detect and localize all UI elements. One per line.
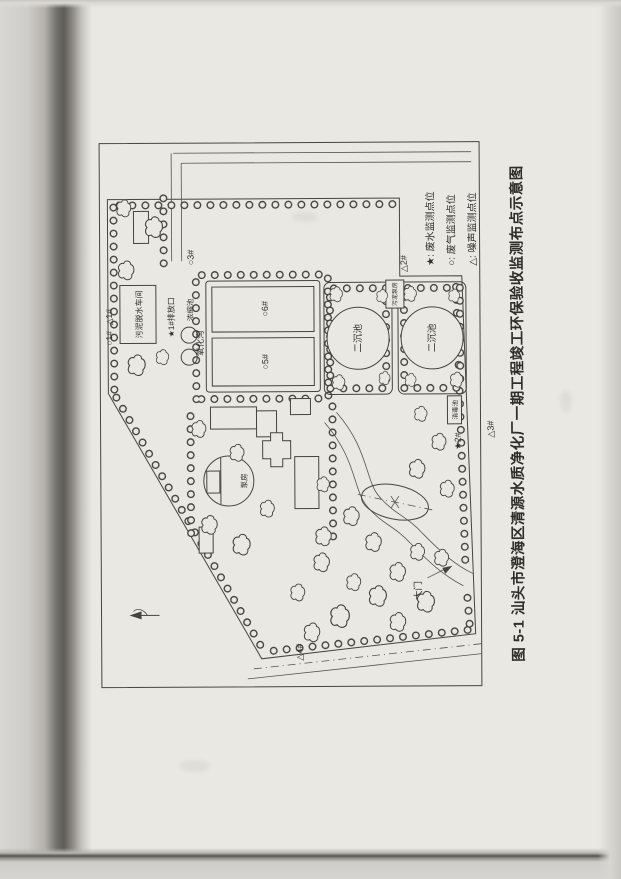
tree-icon	[415, 406, 427, 421]
tree-icon	[118, 261, 133, 280]
tree-icon	[435, 549, 449, 566]
figure-5-1: 污泥脱水车间 浓缩池 ★1#排放口 氧化沟 ○5# ○6# 二沉池 二沉池 污泥…	[93, 138, 546, 695]
tree-icon	[330, 287, 342, 302]
legend-noise: △: 噪声监测点位	[465, 192, 478, 265]
noise-point-2-marker: △2#	[399, 255, 409, 272]
tree-icon	[410, 459, 425, 478]
secondary-tank-2-label: 二沉池	[426, 323, 438, 352]
book-spine-shadow	[0, 0, 92, 879]
noise-point-3-marker: △3#	[486, 421, 496, 438]
tree-icon	[230, 444, 244, 461]
gas-point-5-marker: ○5#	[260, 354, 270, 370]
tree-icon	[260, 500, 274, 517]
secondary-sedimentation-tanks: 二沉池 二沉池 污泥泵房	[324, 280, 467, 395]
tree-icon	[117, 200, 131, 217]
tree-icon	[317, 477, 329, 492]
scan-smudge	[560, 390, 572, 412]
tree-icon	[331, 605, 350, 628]
central-buildings: 泵房	[198, 399, 319, 554]
building-cross	[263, 433, 291, 467]
gas-point-6-marker: ○6#	[260, 301, 270, 317]
tree-icon	[390, 613, 405, 632]
legend-gas: ○: 废气监测点位	[444, 194, 457, 266]
wastewater-point-2-marker: ★2#	[453, 432, 463, 449]
tree-icon	[347, 574, 361, 591]
tree-icon	[440, 480, 454, 497]
sludge-dewatering-label: 污泥脱水车间	[134, 290, 144, 338]
outfall-1-marker: ★1#排放口	[166, 297, 176, 337]
legend-wastewater: ★: 废水监测点位	[423, 191, 436, 266]
scanned-page: 污泥脱水车间 浓缩池 ★1#排放口 氧化沟 ○5# ○6# 二沉池 二沉池 污泥…	[0, 0, 621, 879]
tree-icon	[417, 591, 434, 612]
tree-icon	[146, 217, 163, 238]
figure-caption: 图 5-1 汕头市澄海区清源水质净化厂一期工程竣工环保验收监测布点示意图	[507, 165, 528, 662]
tree-icon	[128, 355, 145, 376]
tree-icon	[432, 433, 446, 450]
north-arrow	[130, 609, 160, 619]
tree-icon	[291, 584, 305, 601]
gas-point-3-marker: ○3#	[186, 250, 196, 266]
tree-icon	[156, 350, 168, 365]
page-top-edge	[0, 0, 621, 8]
building	[295, 457, 319, 509]
thickener-label: 浓缩池	[185, 298, 195, 321]
tree-icon	[411, 543, 425, 560]
scan-smudge	[180, 760, 210, 772]
page-right-edge	[598, 0, 621, 879]
tree-icon	[369, 586, 386, 607]
road-outer-edge	[248, 654, 482, 679]
tree-icon	[344, 507, 359, 526]
noise-point-4-marker: △4#	[295, 644, 305, 661]
gate-arrow-head	[442, 566, 452, 574]
disinfection-tank-label: 消毒池	[450, 400, 459, 420]
legend: ★: 废水监测点位 ○: 废气监测点位 △: 噪声监测点位	[423, 191, 478, 266]
oxidation-ditch-outline	[206, 280, 321, 392]
pump-house-label: 泵房	[239, 473, 249, 488]
tree-icon	[366, 533, 381, 552]
tree-icon	[192, 421, 206, 438]
page-bottom-edge	[0, 848, 621, 879]
site-plan-svg: 污泥脱水车间 浓缩池 ★1#排放口 氧化沟 ○5# ○6# 二沉池 二沉池 污泥…	[93, 138, 546, 695]
tree-icon	[405, 373, 416, 386]
tree-icon	[390, 563, 405, 582]
building	[210, 407, 256, 429]
tree-icon	[379, 371, 390, 384]
oxidation-ditch-complex: 氧化沟 ○5# ○6#	[195, 280, 321, 392]
sludge-pump-house-label: 污泥泵房	[391, 282, 399, 306]
scan-smudge	[292, 212, 318, 222]
tree-icon	[316, 527, 331, 546]
building	[290, 399, 310, 415]
tree-icon	[314, 553, 329, 572]
secondary-tank-1-label: 二沉池	[352, 324, 364, 353]
tree-icon	[304, 623, 319, 642]
tree-icon	[404, 286, 416, 301]
tree-icon	[333, 375, 345, 390]
trees	[117, 198, 464, 643]
tree-icon	[233, 534, 250, 555]
oxidation-ditch-label: 氧化沟	[195, 330, 205, 356]
tree-icon	[202, 515, 217, 534]
pump-house-building	[207, 471, 220, 493]
